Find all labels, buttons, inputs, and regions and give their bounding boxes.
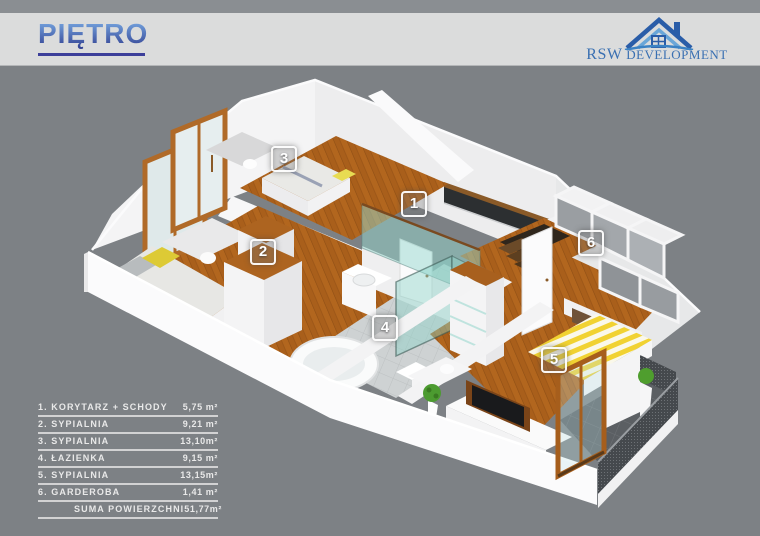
legend-label: 5. SYPIALNIA: [38, 470, 109, 480]
legend-value: 13,15m²: [180, 470, 218, 480]
legend-label: 6. GARDEROBA: [38, 487, 120, 497]
legend-value: 1,41 m²: [183, 487, 218, 497]
legend-value: 9,15 m²: [183, 453, 218, 463]
plant: [423, 384, 441, 402]
legend-label: 3. SYPIALNIA: [38, 436, 109, 446]
legend-row: 1. KORYTARZ + SCHODY 5,75 m²: [38, 401, 218, 417]
legend-value: 13,10m²: [180, 436, 218, 446]
legend-label: SUMA POWIERZCHNI: [38, 504, 184, 514]
room-badge-4: 4: [372, 315, 398, 341]
legend-value: 51,77m²: [184, 504, 222, 514]
legend-label: 1. KORYTARZ + SCHODY: [38, 402, 168, 412]
flyer-page: PIĘTRO RSW DEVELOPMENT: [0, 0, 760, 536]
legend-row: 3. SYPIALNIA 13,10m²: [38, 435, 218, 451]
legend-label: 2. SYPIALNIA: [38, 419, 109, 429]
legend-row: 4. ŁAZIENKA 9,15 m²: [38, 452, 218, 468]
legend-label: 4. ŁAZIENKA: [38, 453, 106, 463]
balcony-plant: [638, 368, 654, 384]
room-badge-6: 6: [578, 230, 604, 256]
room-badge-1: 1: [401, 191, 427, 217]
legend: 1. KORYTARZ + SCHODY 5,75 m² 2. SYPIALNI…: [38, 401, 218, 520]
legend-value: 9,21 m²: [183, 419, 218, 429]
legend-total-row: SUMA POWIERZCHNI 51,77m²: [38, 503, 218, 519]
room-badge-2: 2: [250, 239, 276, 265]
legend-row: 2. SYPIALNIA 9,21 m²: [38, 418, 218, 434]
legend-value: 5,75 m²: [183, 402, 218, 412]
room-badge-3: 3: [271, 146, 297, 172]
legend-row: 6. GARDEROBA 1,41 m²: [38, 486, 218, 502]
legend-row: 5. SYPIALNIA 13,15m²: [38, 469, 218, 485]
room-badge-5: 5: [541, 347, 567, 373]
